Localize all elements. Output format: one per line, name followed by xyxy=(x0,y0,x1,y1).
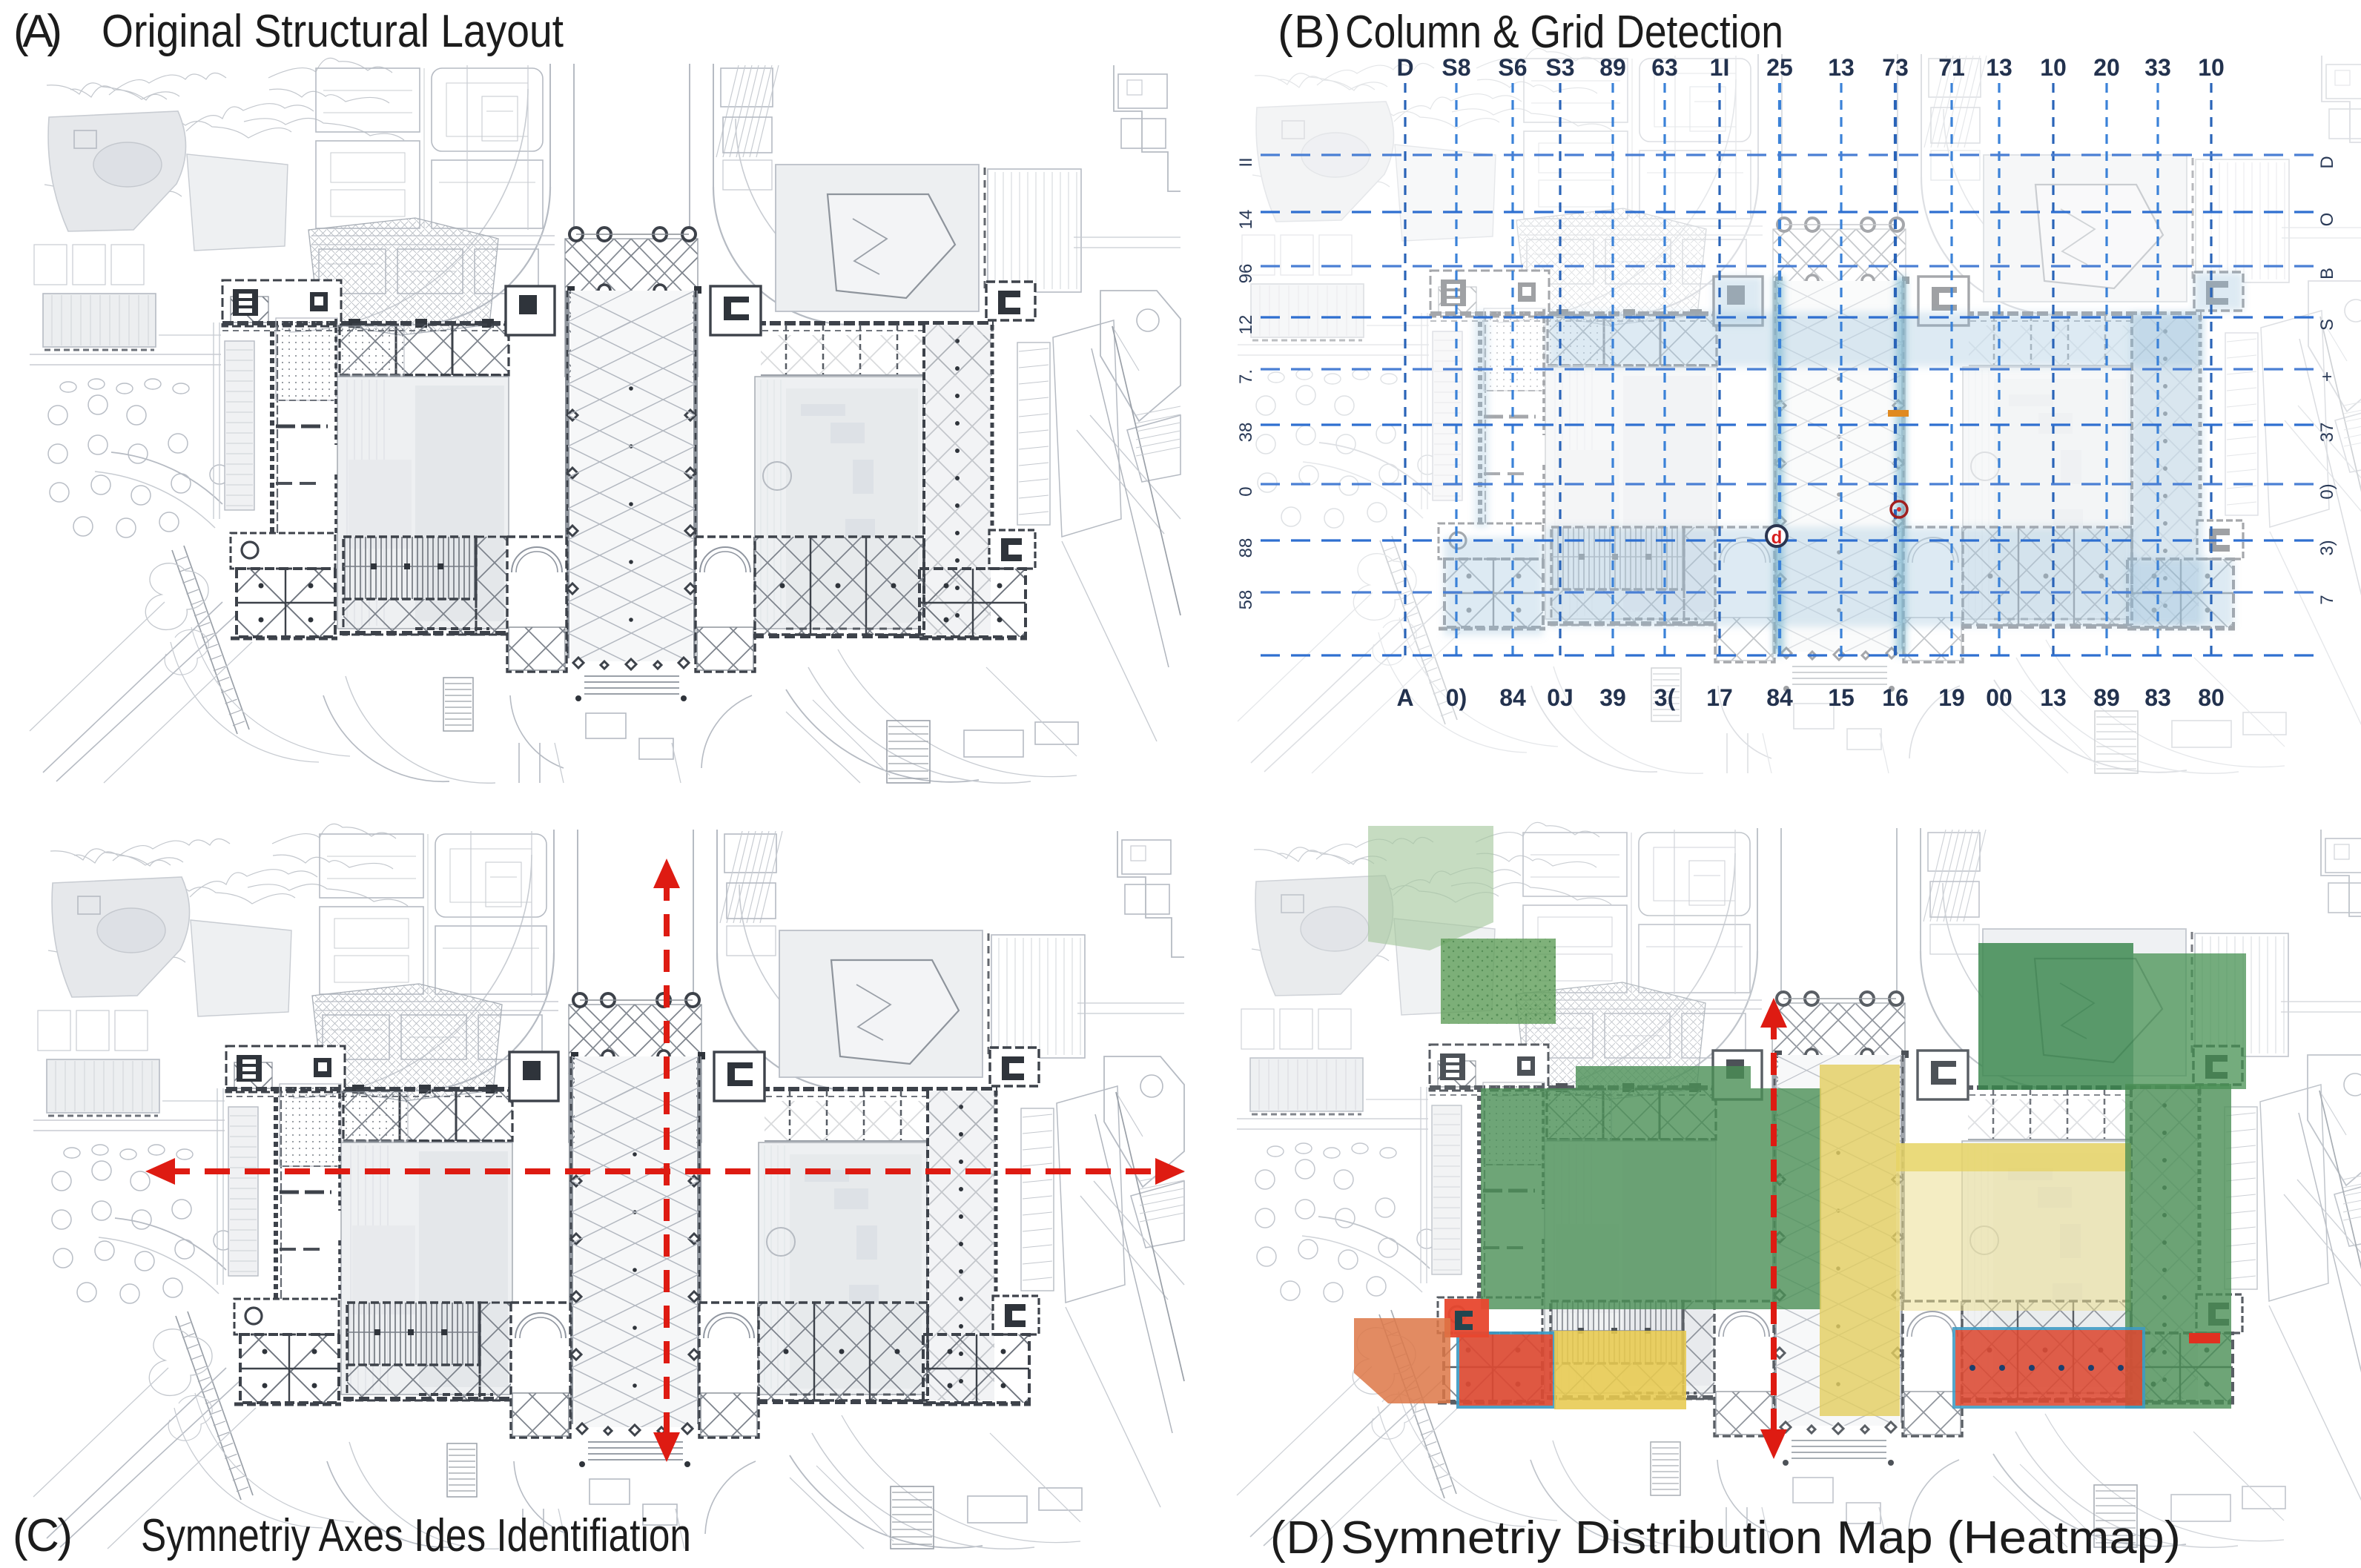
svg-text:15: 15 xyxy=(1828,684,1855,711)
svg-text:1I: 1I xyxy=(1710,54,1730,81)
svg-text:84: 84 xyxy=(1499,684,1526,711)
svg-text:25: 25 xyxy=(1766,54,1793,81)
svg-text:13: 13 xyxy=(2040,684,2067,711)
svg-text:Symnetriy Distribution Map (He: Symnetriy Distribution Map (Heatmap) xyxy=(1341,1512,2181,1564)
svg-text:(A): (A) xyxy=(13,6,62,57)
svg-text:00: 00 xyxy=(1986,684,2012,711)
svg-text:37: 37 xyxy=(2317,423,2337,443)
svg-text:A: A xyxy=(1396,684,1413,711)
svg-text:13: 13 xyxy=(1828,54,1855,81)
svg-text:83: 83 xyxy=(2144,684,2171,711)
svg-text:S6: S6 xyxy=(1498,54,1527,81)
svg-text:89: 89 xyxy=(1599,54,1626,81)
svg-text:71: 71 xyxy=(1938,54,1965,81)
svg-text:d: d xyxy=(1771,528,1783,548)
svg-text:0): 0) xyxy=(2317,483,2337,499)
svg-text:0J: 0J xyxy=(1547,684,1574,711)
svg-text:39: 39 xyxy=(1599,684,1626,711)
svg-text:13: 13 xyxy=(1986,54,2012,81)
svg-text:20: 20 xyxy=(2093,54,2120,81)
svg-text:38: 38 xyxy=(1236,423,1256,443)
svg-text:S8: S8 xyxy=(1442,54,1470,81)
svg-text:S3: S3 xyxy=(1545,54,1574,81)
svg-text:19: 19 xyxy=(1938,684,1965,711)
svg-text:10: 10 xyxy=(2198,54,2225,81)
svg-text:D: D xyxy=(2317,156,2337,168)
svg-text:(B): (B) xyxy=(1278,7,1341,58)
svg-text:0): 0) xyxy=(1446,684,1467,711)
svg-text:17: 17 xyxy=(1706,684,1733,711)
svg-text:+: + xyxy=(2317,371,2337,382)
svg-text:3): 3) xyxy=(2317,540,2337,555)
svg-text:II: II xyxy=(1236,157,1256,167)
svg-text:B: B xyxy=(2317,268,2337,279)
svg-text:Symnetriy Axes Ides Identifiat: Symnetriy Axes Ides Identifiation xyxy=(141,1510,691,1561)
svg-text:Column & Grid Detection: Column & Grid Detection xyxy=(1345,7,1783,58)
svg-text:84: 84 xyxy=(1766,684,1793,711)
svg-text:3(: 3( xyxy=(1654,684,1676,711)
svg-text:58: 58 xyxy=(1236,590,1256,610)
svg-text:S: S xyxy=(2317,319,2337,331)
svg-text:89: 89 xyxy=(2093,684,2120,711)
svg-text:7.: 7. xyxy=(1236,369,1256,384)
svg-text:(C): (C) xyxy=(13,1510,73,1561)
svg-text:0: 0 xyxy=(1236,486,1256,496)
svg-text:O: O xyxy=(2317,213,2337,227)
svg-text:88: 88 xyxy=(1236,538,1256,558)
svg-text:12: 12 xyxy=(1236,315,1256,335)
svg-text:10: 10 xyxy=(2040,54,2067,81)
svg-text:7: 7 xyxy=(2317,595,2337,604)
svg-text:14: 14 xyxy=(1236,210,1256,230)
svg-text:80: 80 xyxy=(2198,684,2225,711)
svg-text:63: 63 xyxy=(1651,54,1678,81)
svg-text:(D): (D) xyxy=(1270,1512,1335,1564)
svg-text:Original Structural Layout: Original Structural Layout xyxy=(102,6,564,57)
svg-text:D: D xyxy=(1396,54,1413,81)
svg-text:33: 33 xyxy=(2144,54,2171,81)
svg-text:16: 16 xyxy=(1882,684,1909,711)
svg-text:73: 73 xyxy=(1882,54,1909,81)
svg-text:96: 96 xyxy=(1236,264,1256,284)
